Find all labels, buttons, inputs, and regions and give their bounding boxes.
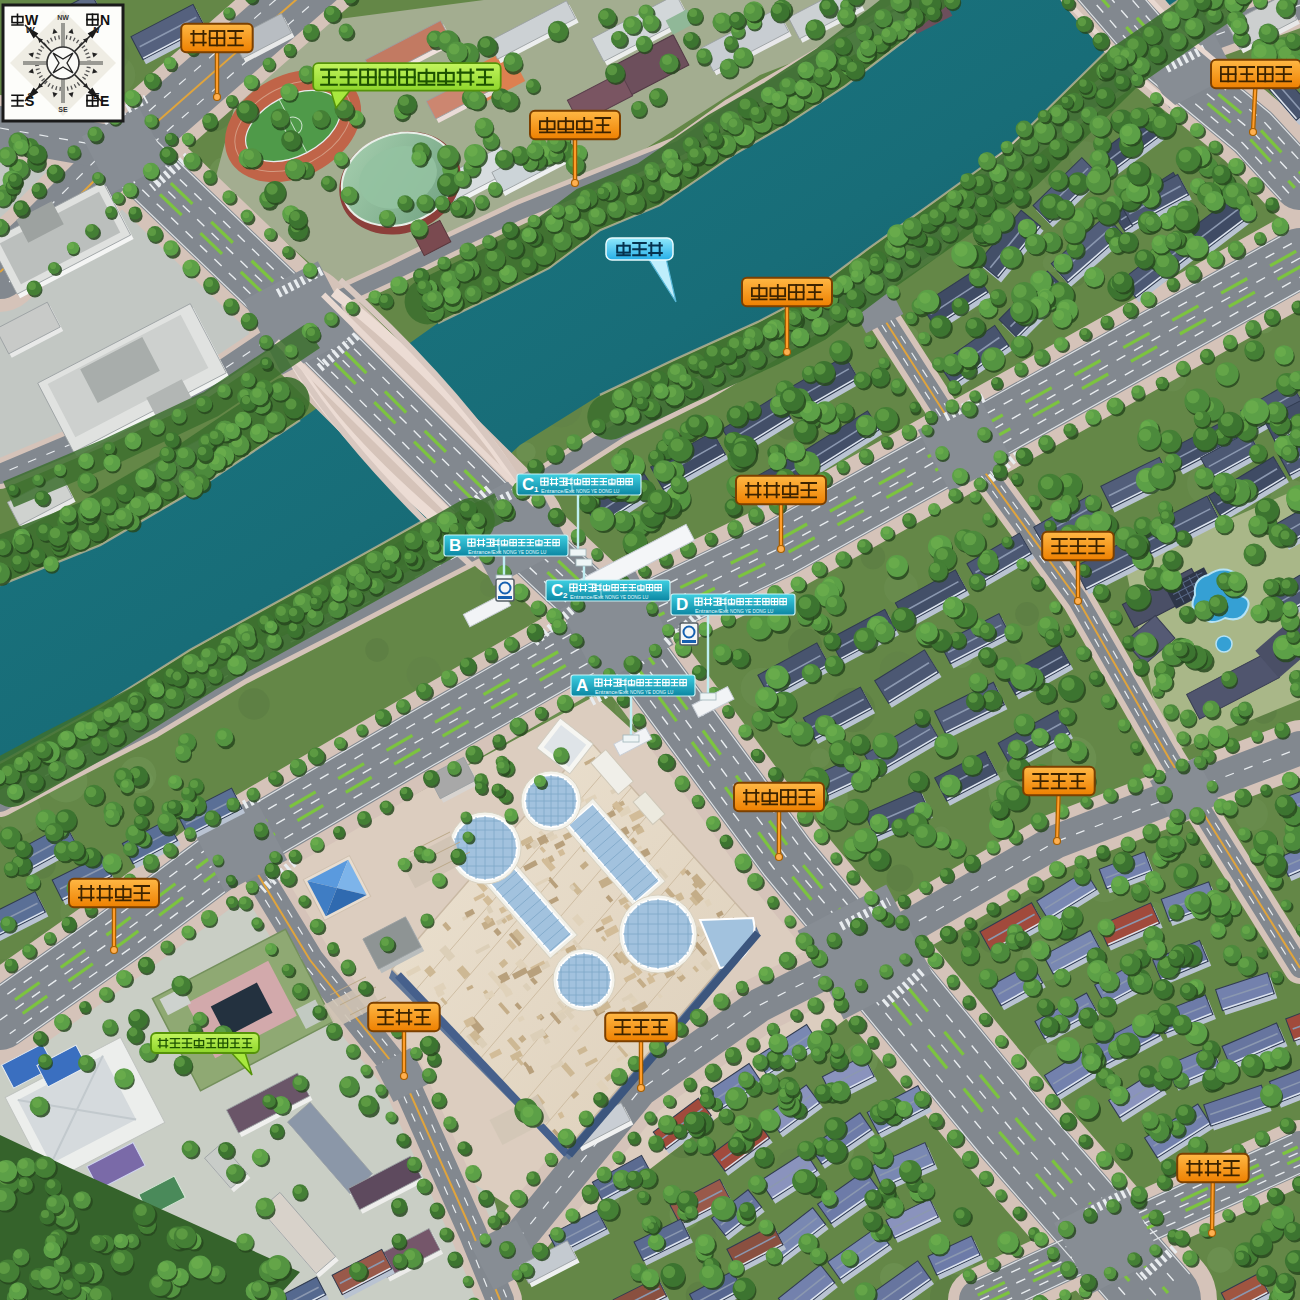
svg-text:NONG YE DONG LU: NONG YE DONG LU [576, 489, 619, 494]
svg-text:2: 2 [563, 591, 568, 600]
svg-text:Entrance/Exit: Entrance/Exit [695, 608, 729, 614]
svg-text:C: C [551, 581, 563, 600]
svg-text:D: D [676, 595, 688, 614]
svg-text:N: N [93, 25, 100, 35]
svg-text:S: S [25, 93, 34, 109]
svg-text:NONG YE DONG LU: NONG YE DONG LU [605, 595, 648, 600]
svg-text:Entrance/Exit: Entrance/Exit [468, 549, 502, 555]
svg-text:SE: SE [58, 106, 68, 113]
svg-text:C: C [522, 475, 534, 494]
svg-text:NONG YE DONG LU: NONG YE DONG LU [630, 690, 673, 695]
svg-text:Entrance/Exit: Entrance/Exit [595, 689, 629, 695]
svg-text:Entrance/Exit: Entrance/Exit [570, 594, 604, 600]
svg-text:1: 1 [534, 485, 539, 494]
svg-text:NONG YE DONG LU: NONG YE DONG LU [730, 609, 773, 614]
svg-text:E: E [100, 93, 109, 109]
svg-text:W: W [25, 12, 39, 28]
svg-text:NW: NW [57, 14, 69, 21]
svg-text:N: N [100, 12, 110, 28]
svg-text:B: B [449, 536, 461, 555]
svg-text:Entrance/Exit: Entrance/Exit [541, 488, 575, 494]
svg-text:NONG YE DONG LU: NONG YE DONG LU [503, 550, 546, 555]
svg-text:A: A [576, 676, 588, 695]
